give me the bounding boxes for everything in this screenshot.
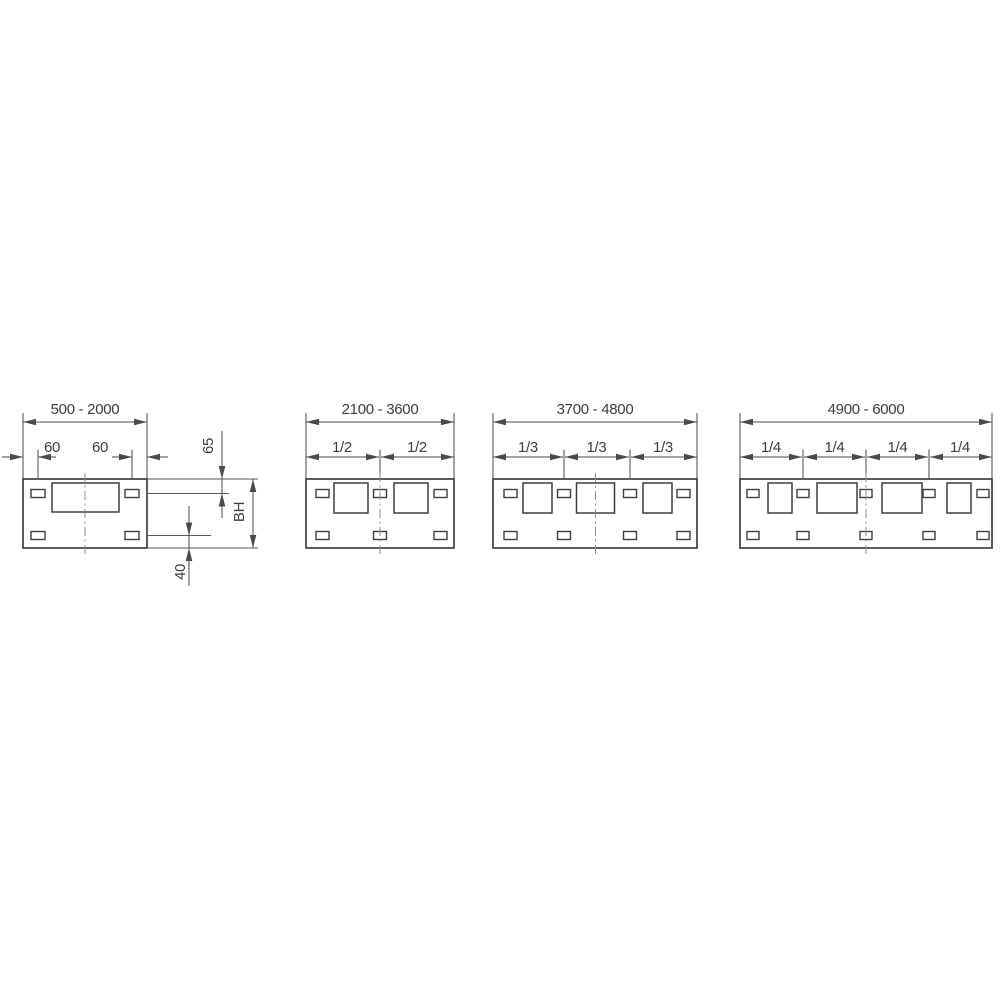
fabric-panel xyxy=(947,483,971,513)
diagram-500-2000: 500 - 2000 60 60 xyxy=(2,401,258,586)
mounting-slot xyxy=(977,532,989,540)
range-label: 4900 - 6000 xyxy=(828,401,905,418)
fabric-panel xyxy=(643,483,672,513)
top-slot-dim-label: 65 xyxy=(200,438,217,454)
range-label: 3700 - 4800 xyxy=(557,401,634,418)
fabric-panel xyxy=(817,483,857,513)
fabric-panel xyxy=(523,483,552,513)
arrowhead-right xyxy=(119,454,132,461)
arrowhead-left xyxy=(147,454,160,461)
diagram-3700-4800: 3700 - 4800 1/3 1/3 1/3 xyxy=(493,401,697,556)
arrowhead-right xyxy=(979,419,992,426)
mounting-slot xyxy=(504,532,517,540)
arrowhead-left xyxy=(493,419,506,426)
mounting-slot xyxy=(125,532,139,540)
side-dimensions: 65 BH 40 xyxy=(147,431,258,586)
fabric-panel xyxy=(394,483,428,513)
fabric-panel xyxy=(768,483,792,513)
mounting-slot xyxy=(558,532,571,540)
mounting-slot xyxy=(504,490,517,498)
bottom-slot-dim-label: 40 xyxy=(172,564,189,580)
mounting-slot xyxy=(316,532,329,540)
arrowhead-left xyxy=(867,454,880,461)
arrowhead-down xyxy=(186,523,193,536)
fraction-label: 1/3 xyxy=(518,439,538,456)
fraction-label: 1/4 xyxy=(761,439,781,456)
arrowhead-left xyxy=(631,454,644,461)
mounting-slot xyxy=(316,490,329,498)
arrowhead-left xyxy=(740,454,753,461)
mounting-slot xyxy=(434,532,447,540)
mounting-slot xyxy=(31,490,45,498)
fabric-panel xyxy=(882,483,922,513)
range-label: 2100 - 3600 xyxy=(342,401,419,418)
dimension-drawing: 500 - 2000 60 60 xyxy=(0,0,1000,1000)
arrowhead-left xyxy=(930,454,943,461)
fraction-label: 1/4 xyxy=(950,439,970,456)
mounting-slot xyxy=(923,490,935,498)
arrowhead-left xyxy=(306,419,319,426)
height-dim-label: BH xyxy=(231,502,248,522)
mounting-slot xyxy=(125,490,139,498)
mounting-slot xyxy=(923,532,935,540)
mounting-slot xyxy=(624,490,637,498)
mounting-slot xyxy=(624,532,637,540)
arrowhead-left xyxy=(306,454,319,461)
arrowhead-left xyxy=(804,454,817,461)
arrowhead-left xyxy=(381,454,394,461)
arrowhead-right xyxy=(366,454,379,461)
arrowhead-right xyxy=(10,454,23,461)
fraction-label: 1/2 xyxy=(407,439,427,456)
mounting-slot xyxy=(797,490,809,498)
arrowhead-right xyxy=(134,419,147,426)
mounting-slot xyxy=(31,532,45,540)
arrowhead-right xyxy=(852,454,865,461)
diagram-2100-3600: 2100 - 3600 1/2 1/2 xyxy=(306,401,454,556)
range-dimension: 500 - 2000 xyxy=(23,401,147,479)
arrowhead-down xyxy=(250,535,257,548)
arrowhead-up xyxy=(186,548,193,561)
arrowhead-right xyxy=(684,454,697,461)
mounting-slot xyxy=(677,490,690,498)
drawing-canvas: 500 - 2000 60 60 xyxy=(0,0,1000,1000)
mounting-slot xyxy=(558,490,571,498)
mounting-slot xyxy=(797,532,809,540)
diagram-4900-6000: 4900 - 6000 1/4 1/4 1/4 1/4 xyxy=(740,401,992,556)
offset-label-right: 60 xyxy=(92,439,108,456)
range-label: 500 - 2000 xyxy=(51,401,120,418)
arrowhead-left xyxy=(740,419,753,426)
mounting-slot xyxy=(677,532,690,540)
fraction-label: 1/3 xyxy=(587,439,607,456)
arrowhead-right xyxy=(789,454,802,461)
fabric-panel xyxy=(334,483,368,513)
mounting-slot xyxy=(434,490,447,498)
mounting-slot xyxy=(977,490,989,498)
arrowhead-up xyxy=(250,479,257,492)
fraction-label: 1/3 xyxy=(653,439,673,456)
fraction-label: 1/2 xyxy=(332,439,352,456)
arrowhead-left xyxy=(493,454,506,461)
arrowhead-right xyxy=(550,454,563,461)
offset-label-left: 60 xyxy=(44,439,60,456)
fraction-label: 1/4 xyxy=(825,439,845,456)
arrowhead-right xyxy=(684,419,697,426)
arrowhead-right xyxy=(915,454,928,461)
arrowhead-up xyxy=(219,494,226,507)
arrowhead-right xyxy=(441,454,454,461)
arrowhead-right xyxy=(979,454,992,461)
arrowhead-left xyxy=(23,419,36,426)
arrowhead-right xyxy=(441,419,454,426)
mounting-slot xyxy=(747,532,759,540)
arrowhead-left xyxy=(565,454,578,461)
arrowhead-right xyxy=(616,454,629,461)
mounting-slot xyxy=(747,490,759,498)
arrowhead-down xyxy=(219,466,226,479)
fraction-label: 1/4 xyxy=(888,439,908,456)
